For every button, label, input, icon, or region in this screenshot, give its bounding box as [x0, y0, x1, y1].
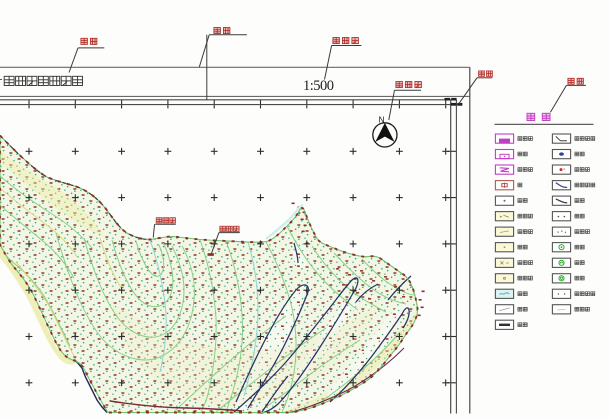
svg-text:1:500: 1:500 — [303, 78, 334, 94]
svg-text:N: N — [379, 115, 385, 125]
